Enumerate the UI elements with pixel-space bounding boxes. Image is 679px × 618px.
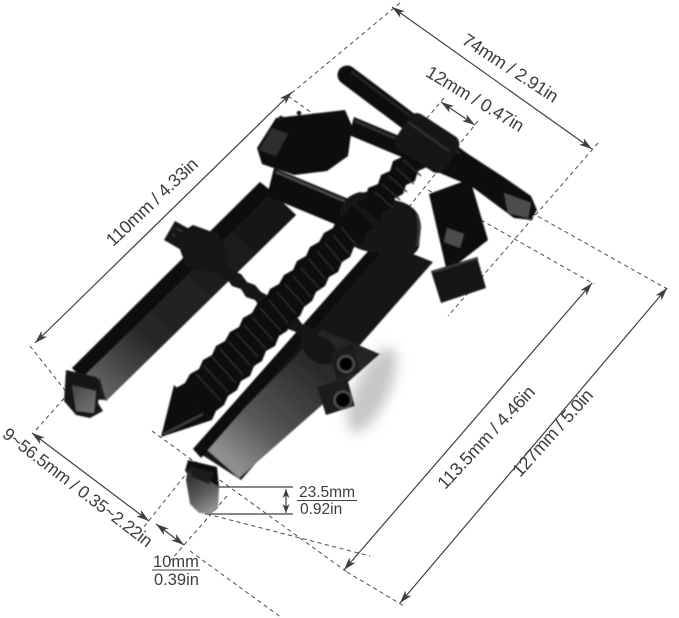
svg-text:23.5mm: 23.5mm — [299, 484, 355, 501]
svg-text:10mm: 10mm — [153, 553, 199, 571]
svg-text:0.39in: 0.39in — [154, 571, 199, 589]
svg-text:0.92in: 0.92in — [300, 501, 342, 518]
